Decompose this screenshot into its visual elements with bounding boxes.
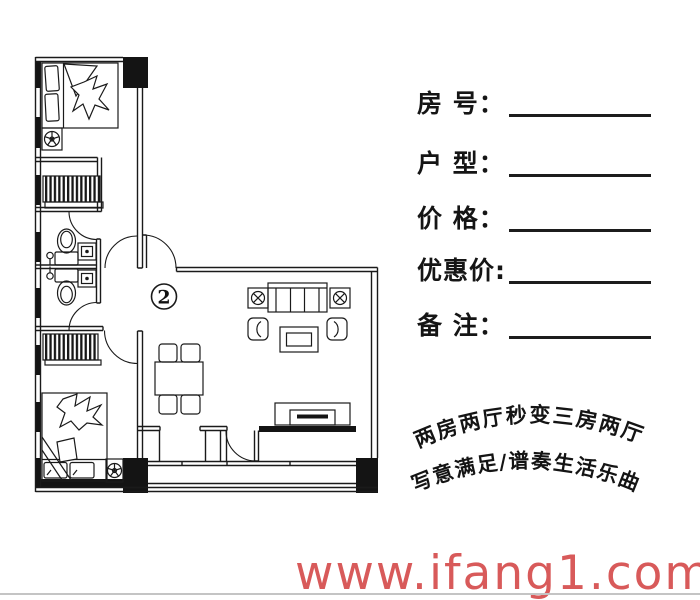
- plant-icon: [42, 128, 62, 150]
- watermark: www.ifang1.com: [295, 546, 700, 600]
- slogan-line-1: 两房两厅秒变三房两厅: [410, 402, 648, 453]
- photo-edge-line: [0, 593, 700, 595]
- flyer-page: 2 两房两厅秒变三房两厅 写意满足/谱奏生活乐曲 房 号： 户 型： 价 格： …: [0, 0, 700, 600]
- window-sill-wall: [259, 426, 356, 432]
- unit-type-label: 户 型：: [417, 150, 507, 178]
- toilet-icon: [55, 269, 78, 305]
- blank-line: [509, 84, 651, 117]
- armchair-icon: [327, 318, 347, 340]
- balcony-door-arc: [226, 431, 256, 461]
- unit-number-badge: 2: [152, 284, 177, 309]
- remarks-label: 备 注：: [417, 312, 507, 340]
- wardrobe-icon: [43, 334, 101, 365]
- pillow-icon: [45, 66, 60, 92]
- entry-door-arc-left: [105, 236, 137, 268]
- form-row-discount-price: 优惠价:: [417, 251, 651, 284]
- bathroom1-door-arc: [69, 212, 97, 240]
- blank-line: [509, 306, 651, 339]
- form-row-price: 价 格：: [417, 199, 651, 232]
- blanket-icon: [57, 394, 102, 430]
- bed-icon: [42, 63, 118, 128]
- bottom-wall: [35, 479, 123, 487]
- chair-icon: [181, 395, 200, 414]
- form-row-room-number: 房 号：: [417, 84, 651, 117]
- floor-lamp-icon: [330, 288, 350, 308]
- floor-lamp-icon: [248, 288, 268, 308]
- armchair-icon: [248, 318, 268, 340]
- dining-table-icon: [155, 344, 203, 414]
- blank-line: [509, 251, 651, 284]
- blank-line: [509, 199, 651, 232]
- balcony-door-leaf: [255, 431, 259, 462]
- column-icon: [123, 57, 148, 88]
- wardrobe-icon: [43, 176, 103, 208]
- bed-icon: [42, 393, 107, 481]
- furniture: [42, 63, 350, 482]
- pillow-icon: [70, 463, 94, 479]
- discount-price-label: 优惠价:: [417, 257, 507, 285]
- bedroom2-door-arc: [105, 331, 138, 364]
- entry-door-arc-right: [143, 235, 176, 268]
- unit-number: 2: [157, 287, 170, 309]
- form-row-remarks: 备 注：: [417, 306, 651, 339]
- sofa-icon: [268, 283, 327, 312]
- form-row-unit-type: 户 型：: [417, 144, 651, 177]
- sink-icon: [78, 243, 96, 260]
- chair-icon: [159, 344, 177, 362]
- blank-line: [509, 144, 651, 177]
- shower-head-icon: [47, 252, 53, 279]
- toilet-icon: [55, 229, 78, 265]
- plant-icon: [106, 459, 123, 482]
- slogan-line-2: 写意满足/谱奏生活乐曲: [408, 449, 644, 497]
- room-number-label: 房 号：: [417, 90, 507, 118]
- price-label: 价 格：: [417, 205, 507, 233]
- sink-icon: [78, 270, 96, 287]
- structural-columns: [35, 57, 378, 493]
- chair-icon: [159, 395, 177, 414]
- chair-icon: [181, 344, 200, 362]
- coffee-table-icon: [280, 327, 318, 352]
- tv-cabinet-icon: [275, 403, 350, 425]
- pillow-icon: [45, 94, 59, 122]
